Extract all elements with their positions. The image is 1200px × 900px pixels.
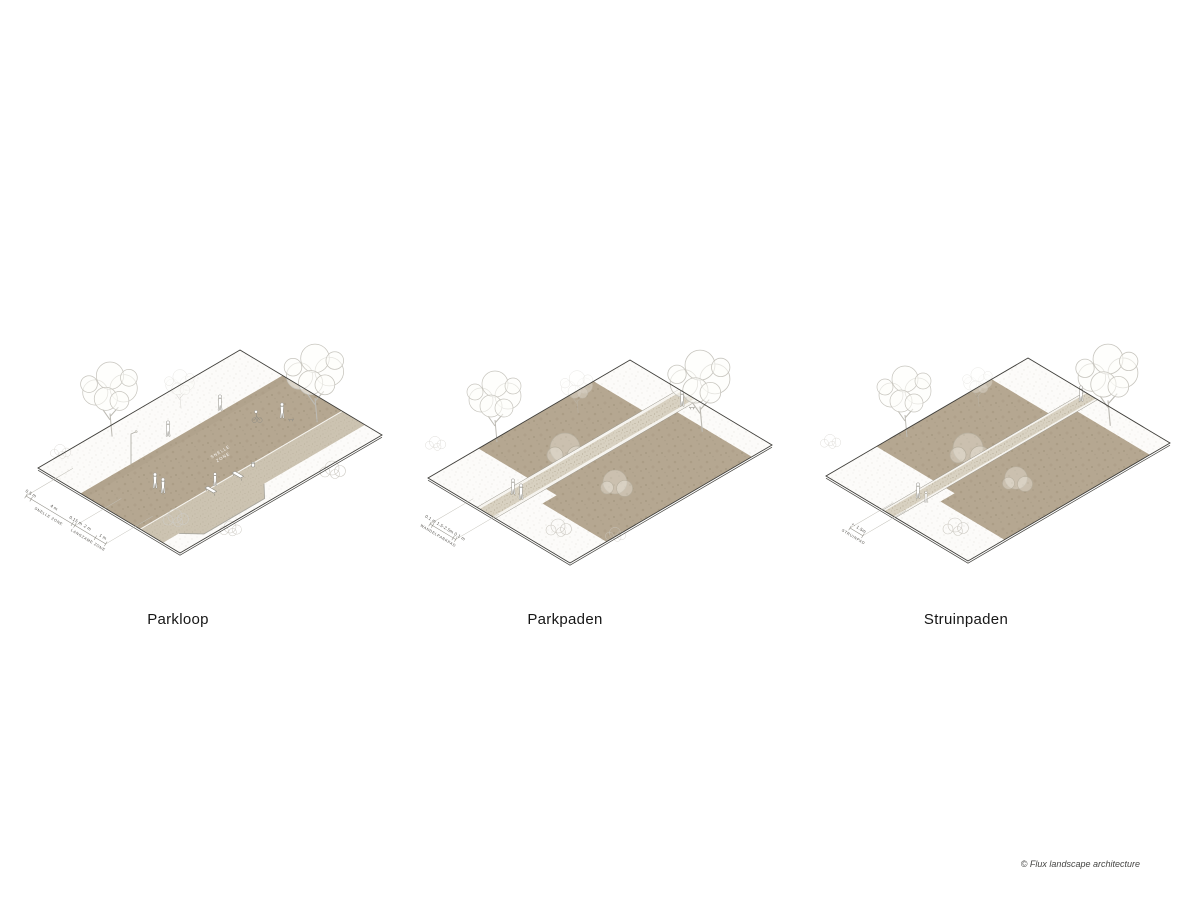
- parkloop-diagram: SNELLE ZONE 0.5 m 4 m 0: [10, 320, 390, 620]
- trash-bin-icon: [252, 462, 255, 467]
- copyright-note: © Flux landscape architecture: [990, 859, 1140, 869]
- diagram-title-parkpaden: Parkpaden: [465, 611, 665, 628]
- diagram-title-parkloop: Parkloop: [78, 611, 278, 628]
- diagram-title-struinpaden: Struinpaden: [866, 611, 1066, 628]
- dim-label: 0.5 m: [25, 488, 38, 499]
- shrub-icon: [425, 436, 445, 450]
- dim-label: 4 m: [49, 503, 58, 511]
- parkpaden-diagram: 0.1 m 1.5-2.5m 0.1 m WANDELPARKPAD: [400, 330, 780, 630]
- dim-label: 2 m: [83, 523, 92, 531]
- dim-label: +- 1.5m: [851, 521, 868, 534]
- dim-label: 0.15 m: [68, 515, 83, 527]
- dim-label: 1.5-2.5m: [436, 521, 455, 535]
- struinpaden-diagram: +- 1.5m STRUINPAD: [798, 328, 1178, 628]
- page: SNELLE ZONE 0.5 m 4 m 0: [0, 0, 1200, 900]
- shrub-icon: [820, 434, 840, 448]
- dim-label: 1 m: [98, 533, 107, 541]
